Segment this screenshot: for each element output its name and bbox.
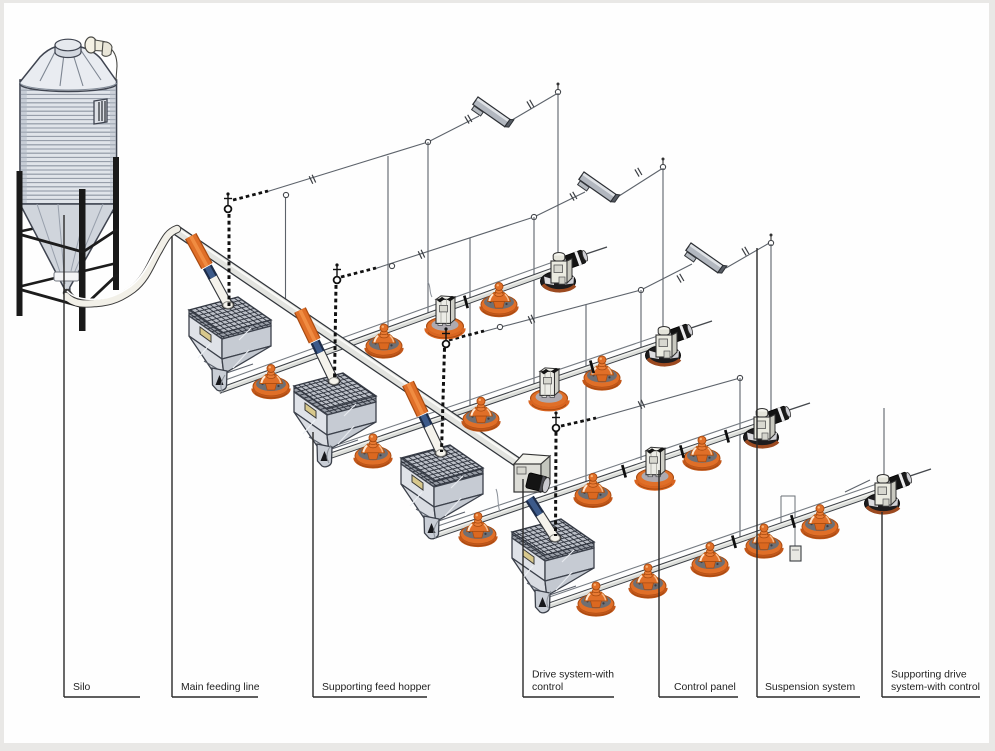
svg-text:system-with control: system-with control [891, 682, 980, 693]
svg-text:Silo: Silo [73, 682, 91, 693]
svg-text:Control panel: Control panel [674, 682, 736, 693]
svg-text:Suspension system: Suspension system [765, 682, 855, 693]
svg-text:control: control [532, 682, 563, 693]
svg-text:Main feeding line: Main feeding line [181, 682, 260, 693]
svg-text:Supporting feed hopper: Supporting feed hopper [322, 682, 431, 693]
svg-text:Supporting drive: Supporting drive [891, 670, 967, 681]
svg-text:Drive system-with: Drive system-with [532, 670, 614, 681]
